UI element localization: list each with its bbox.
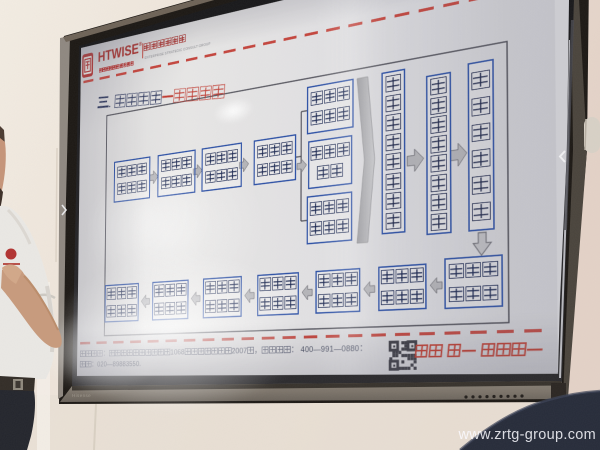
svg-text:www.zrtg-group.com: www.zrtg-group.com	[457, 427, 596, 443]
